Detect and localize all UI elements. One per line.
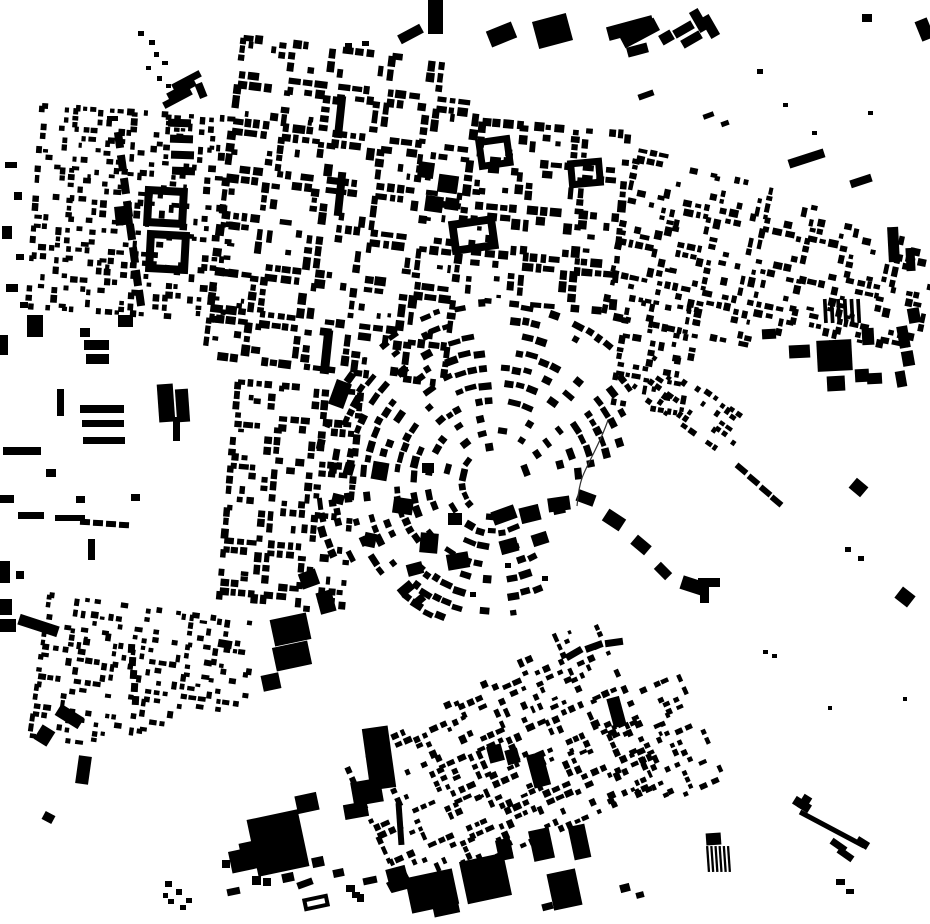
figure-ground-map (0, 0, 930, 924)
map-canvas (0, 0, 930, 924)
